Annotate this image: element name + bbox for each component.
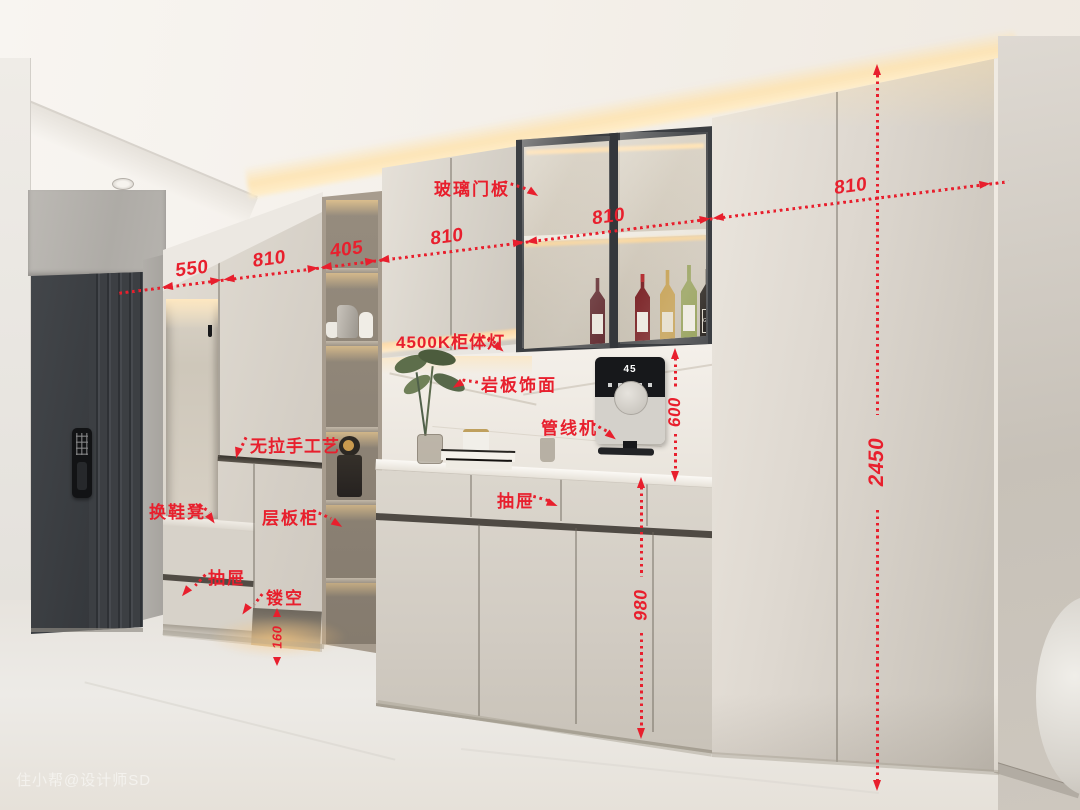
dimension-line — [640, 487, 643, 577]
dim-label: 810 — [430, 224, 463, 250]
dimension-line — [674, 358, 677, 390]
door-floor-shadow — [31, 628, 143, 632]
right-wardrobe — [712, 58, 998, 774]
dimension-line — [876, 75, 879, 415]
door-fluting — [89, 272, 143, 634]
shelf-glow — [326, 583, 378, 597]
leader-drawer-left: 抽屉 — [208, 564, 246, 589]
dim-label: 2450 — [865, 436, 889, 488]
dimension-2450: 2450 — [866, 64, 888, 792]
leader-shoe-bench: 换鞋凳 — [149, 498, 206, 523]
leader-water-dispenser: 管线机 — [541, 414, 598, 439]
decor-books — [441, 449, 517, 469]
dim-arrow-icon — [637, 728, 645, 739]
cabinet-mullion — [609, 128, 618, 356]
dim-label: 550 — [175, 256, 208, 282]
dimension-600: 600 — [664, 348, 686, 482]
dim-arrow-icon — [161, 282, 173, 291]
dim-label: 810 — [592, 204, 625, 230]
leader-glass-door: 玻璃门板 — [434, 175, 510, 200]
dim-arrow-icon — [873, 780, 881, 791]
watermark: 住小帮@设计师SD — [16, 769, 151, 790]
lock-handle — [77, 462, 87, 490]
shoe-bench-niche — [166, 299, 218, 519]
dim-label: 810 — [253, 247, 286, 273]
leader-shelf-cabinet: 层板柜 — [262, 504, 319, 529]
dispenser-display: 45 — [595, 364, 665, 375]
shelf-glow — [326, 273, 378, 289]
dim-arrow-icon — [273, 608, 281, 617]
leader-hollow: 镂空 — [266, 584, 304, 609]
decor-glass — [540, 438, 555, 462]
dim-arrow-icon — [671, 471, 679, 482]
wardrobe-edge-light — [994, 58, 998, 772]
ceiling-spotlight-icon — [112, 178, 134, 190]
plant-vase — [417, 434, 443, 464]
drawer-seam — [470, 472, 472, 517]
dim-arrow-icon — [273, 657, 281, 666]
dim-arrow-icon — [873, 64, 881, 75]
decor-kettle — [337, 305, 358, 338]
smart-lock — [72, 428, 92, 498]
concrete-column — [143, 254, 166, 620]
dim-label: 810 — [834, 174, 867, 200]
dimension-160: 160 — [266, 608, 288, 666]
robot-body — [337, 455, 362, 497]
leader-handleless: 无拉手工艺 — [250, 432, 340, 457]
dimension-line — [876, 510, 879, 780]
shelf-glow — [326, 346, 378, 362]
dim-label: 600 — [665, 396, 685, 429]
decor-vase — [359, 312, 373, 338]
dim-label: 160 — [270, 624, 285, 649]
dim-arrow-icon — [979, 179, 991, 188]
lock-keypad — [76, 433, 88, 455]
door-seam — [575, 528, 577, 724]
leader-drawer-center: 抽屉 — [497, 487, 535, 512]
drawer-seam — [560, 476, 562, 521]
cabinet-seam — [253, 464, 255, 610]
dispenser-tray — [598, 447, 654, 455]
entry-door — [31, 272, 143, 634]
glass-reflection — [620, 132, 708, 344]
dimension-line — [640, 633, 643, 727]
book — [446, 458, 512, 470]
cabinet-seam — [218, 232, 220, 457]
coat-hook-icon — [208, 325, 212, 337]
robot-visor — [343, 440, 354, 451]
door-seam — [652, 532, 654, 732]
door-seam — [478, 524, 480, 716]
leader-stone-finish: 岩板饰面 — [481, 371, 557, 396]
shelf-glow — [326, 200, 378, 216]
dim-label: 980 — [631, 588, 652, 622]
dim-label: 405 — [330, 237, 363, 263]
dispenser-knob — [614, 381, 648, 415]
interior-render: GAJA 45 — [0, 0, 1080, 810]
dimension-line — [674, 434, 677, 472]
drawer-gap-band — [376, 513, 718, 538]
dimension-980: 980 — [630, 477, 652, 739]
